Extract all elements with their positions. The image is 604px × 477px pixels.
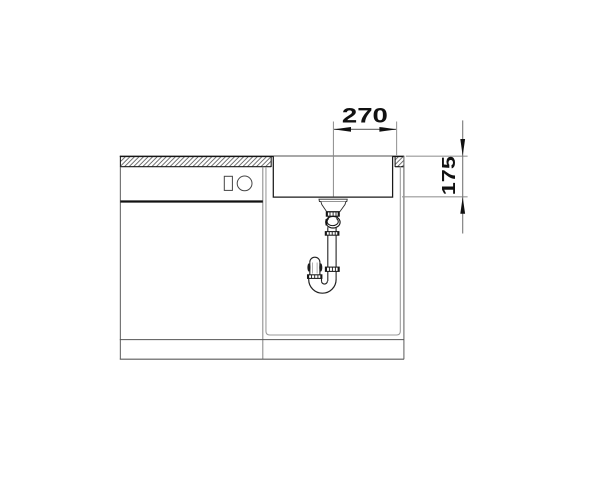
svg-text:270: 270 bbox=[342, 104, 388, 127]
svg-text:175: 175 bbox=[438, 156, 459, 195]
